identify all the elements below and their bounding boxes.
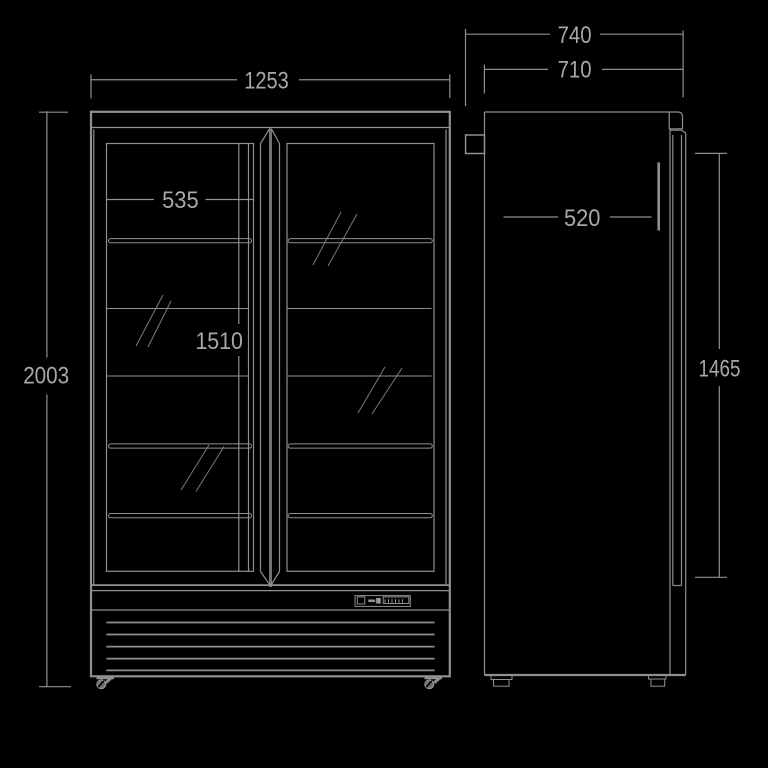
svg-text:710: 710 [558, 57, 592, 84]
svg-text:535: 535 [162, 187, 199, 214]
svg-text:2003: 2003 [23, 362, 69, 389]
svg-text:1465: 1465 [699, 355, 741, 382]
svg-text:1510: 1510 [195, 328, 243, 355]
svg-text:520: 520 [564, 205, 601, 232]
svg-text:1253: 1253 [244, 67, 289, 94]
svg-text:740: 740 [558, 22, 592, 49]
